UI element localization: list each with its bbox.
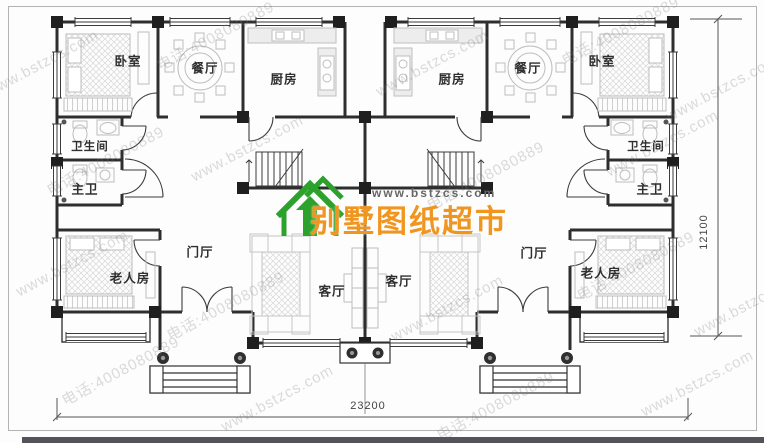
floor-plan-page: www.bstzcs.com电话:4008080889www.bstzcs.co… (0, 0, 764, 443)
floor-plan-drawing (0, 0, 764, 443)
unit-left (51, 16, 365, 393)
center-porch (340, 343, 390, 414)
bottom-bar (22, 437, 764, 443)
entry-porch (150, 352, 250, 393)
stairs-icon (246, 149, 303, 187)
unit-right (365, 16, 679, 393)
party-wall (359, 111, 371, 349)
